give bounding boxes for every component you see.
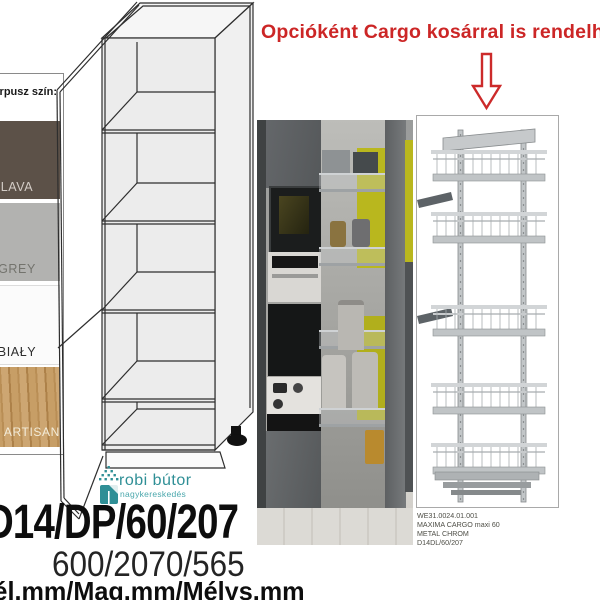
kitchen-photo [257,120,413,545]
microwave [269,186,325,254]
cargo-basket-photo [416,115,559,508]
down-arrow-icon [468,48,508,112]
product-code-line: MAXIMA CARGO maxi 60 [417,520,500,529]
product-code-line: METAL CHROM [417,529,500,538]
cargo-option-note: Opcióként Cargo kosárral is rendelhető [261,21,600,44]
cargo-product-codes: WE31.0024.01.001 MAXIMA CARGO maxi 60 ME… [417,511,500,547]
product-code-line: WE31.0024.01.001 [417,511,500,520]
open-gray-door [385,120,406,520]
logo-name: robi bútor [119,472,192,490]
lower-door [266,431,322,508]
model-code: D14/DP/60/207 [0,495,238,550]
floor [257,508,413,545]
dimensions-labels: Szél.mm/Mag.mm/Mélys.mm [0,576,305,600]
catalog-page: Opcióként Cargo kosárral is rendelhető K… [0,0,600,600]
product-code-line: D14DL/60/207 [417,538,500,547]
oven-knob-panel [267,377,322,414]
photo-left-edge [257,120,266,520]
oven-upper [268,252,322,302]
